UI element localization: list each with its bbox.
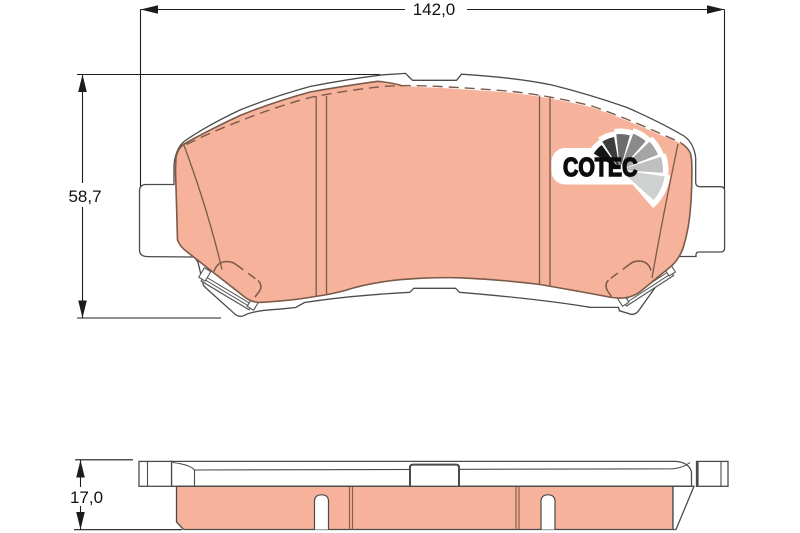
- svg-text:17,0: 17,0: [70, 488, 103, 507]
- svg-text:COTEC: COTEC: [563, 154, 638, 182]
- svg-text:142,0: 142,0: [413, 0, 456, 19]
- svg-text:58,7: 58,7: [68, 187, 101, 206]
